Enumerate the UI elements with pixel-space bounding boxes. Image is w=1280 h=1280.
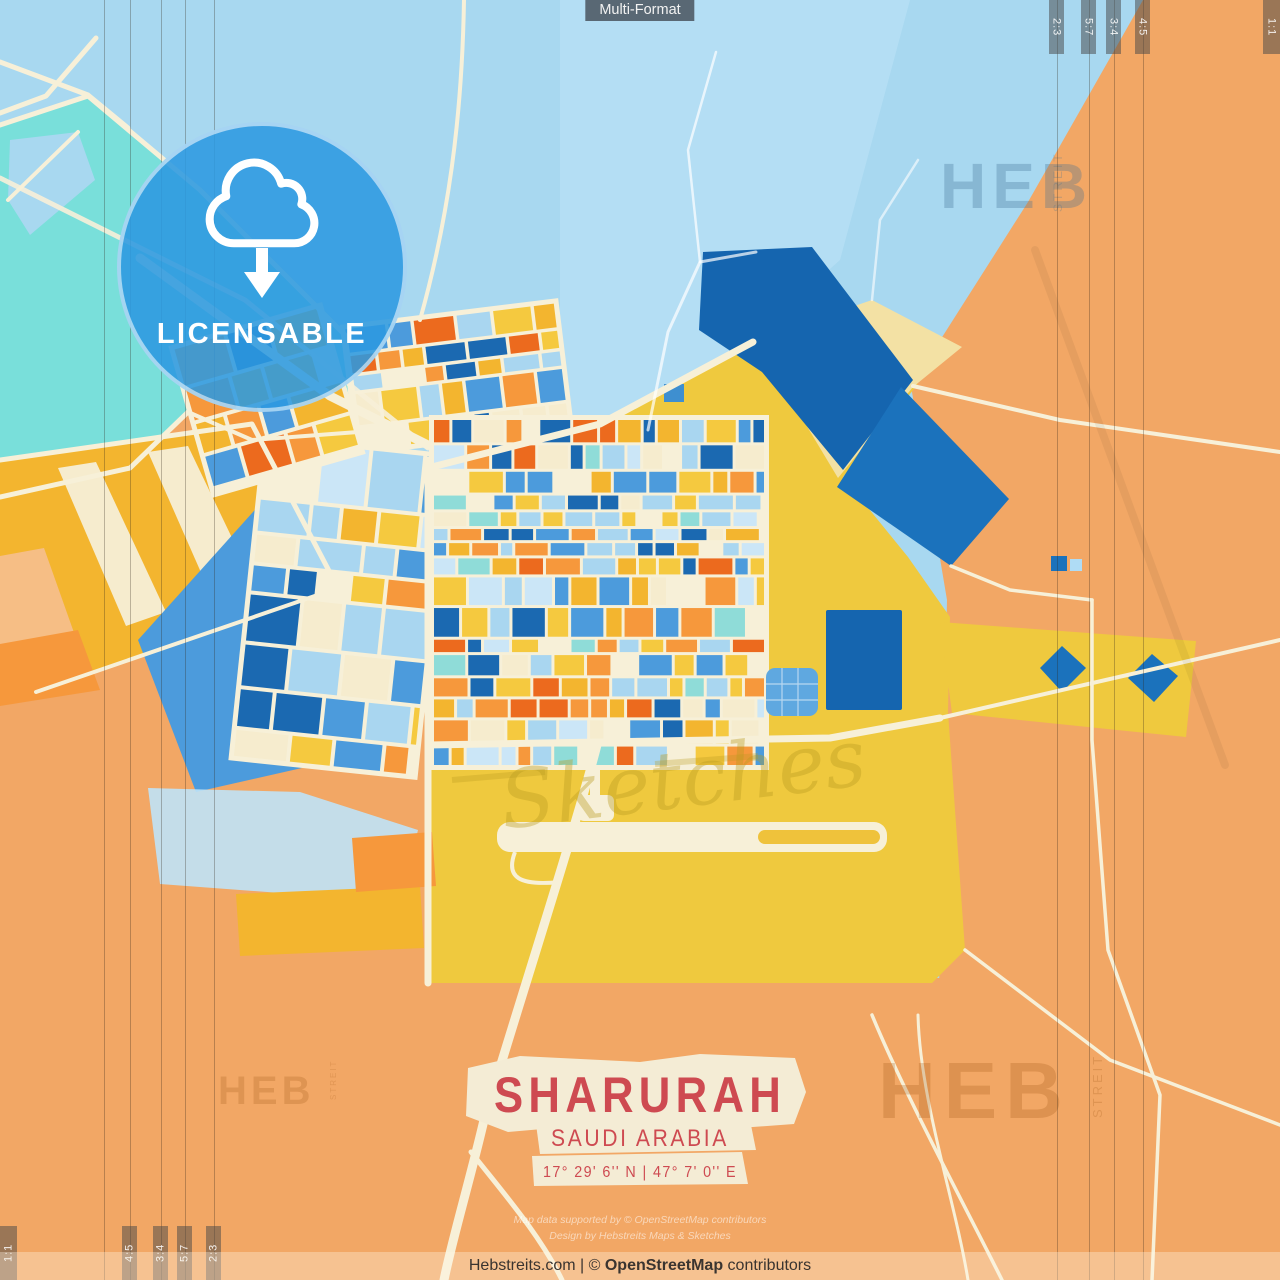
download-arrow-icon [240,248,284,302]
format-label-4-5-top: 4:5 [1135,0,1150,54]
credits-line-2: Design by Hebstreits Maps & Sketches [0,1229,1280,1244]
footer-suffix: contributors [723,1257,811,1274]
format-label-1-1-top: 1:1 [1263,0,1280,54]
badge-label: LICENSABLE [157,318,367,351]
footer-bar: Hebstreits.com | © OpenStreetMap contrib… [0,1252,1280,1280]
cloud-download-icon [196,152,328,254]
city-name: SHARURAH [494,1067,786,1123]
watermark-heb-bottom-right: HEB [878,1046,1071,1135]
watermark-heb-bottom-left: HEB [218,1069,314,1113]
format-label-2-3-top: 2:3 [1049,0,1064,54]
watermark-streit-top: STREIT [1051,151,1065,212]
multi-format-chip: Multi-Format [585,0,694,21]
footer-site: Hebstreits.com | © [469,1257,605,1274]
watermark-streit-bottom-left: STREIT [329,1060,338,1100]
credits-line-1: Map data supported by © OpenStreetMap co… [0,1213,1280,1228]
map-poster-preview[interactable]: HEB STREIT Sketches HEB STREIT HEB STREI… [0,0,1280,1280]
watermark-heb-top: HEB [940,150,1093,222]
coordinates: 17° 29' 6'' N | 47° 7' 0'' E [543,1164,737,1181]
footer-osm: OpenStreetMap [605,1257,723,1274]
licensable-badge: LICENSABLE [117,122,407,412]
watermark-streit-bottom-right: STREIT [1090,1054,1105,1118]
format-label-5-7-top: 5:7 [1081,0,1096,54]
format-label-3-4-top: 3:4 [1106,0,1121,54]
country-name: SAUDI ARABIA [551,1125,729,1152]
